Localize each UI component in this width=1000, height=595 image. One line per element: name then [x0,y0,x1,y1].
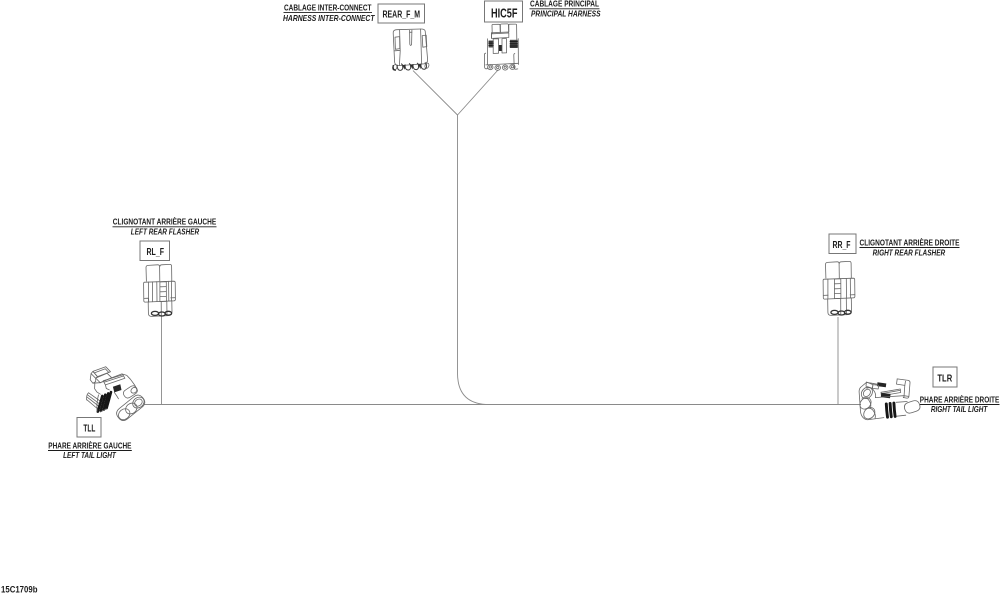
svg-text:RIGHT TAIL LIGHT: RIGHT TAIL LIGHT [931,404,988,414]
svg-text:CLIGNOTANT ARRIÈRE GAUCHE: CLIGNOTANT ARRIÈRE GAUCHE [113,217,217,227]
svg-text:HARNESS INTER-CONNECT: HARNESS INTER-CONNECT [283,13,375,23]
svg-text:HIC5F: HIC5F [491,6,518,21]
svg-text:LEFT TAIL LIGHT: LEFT TAIL LIGHT [63,450,116,460]
svg-text:PHARE ARRIÈRE GAUCHE: PHARE ARRIÈRE GAUCHE [48,440,131,450]
svg-text:PHARE ARRIÈRE DROITE: PHARE ARRIÈRE DROITE [920,394,1000,404]
svg-text:CABLAGE INTER-CONNECT: CABLAGE INTER-CONNECT [284,3,372,13]
svg-text:CLIGNOTANT ARRIÈRE DROITE: CLIGNOTANT ARRIÈRE DROITE [860,237,960,247]
svg-text:RR_F: RR_F [833,239,851,251]
svg-text:15C1709b: 15C1709b [1,585,38,595]
svg-text:PRINCIPAL HARNESS: PRINCIPAL HARNESS [531,8,601,18]
svg-text:REAR_F_M: REAR_F_M [383,8,421,20]
svg-text:TLR: TLR [937,372,952,384]
svg-text:LEFT REAR FLASHER: LEFT REAR FLASHER [131,227,200,237]
svg-text:RL_F: RL_F [147,246,165,258]
svg-text:RIGHT REAR FLASHER: RIGHT REAR FLASHER [873,248,946,258]
svg-text:TLL: TLL [83,422,95,434]
